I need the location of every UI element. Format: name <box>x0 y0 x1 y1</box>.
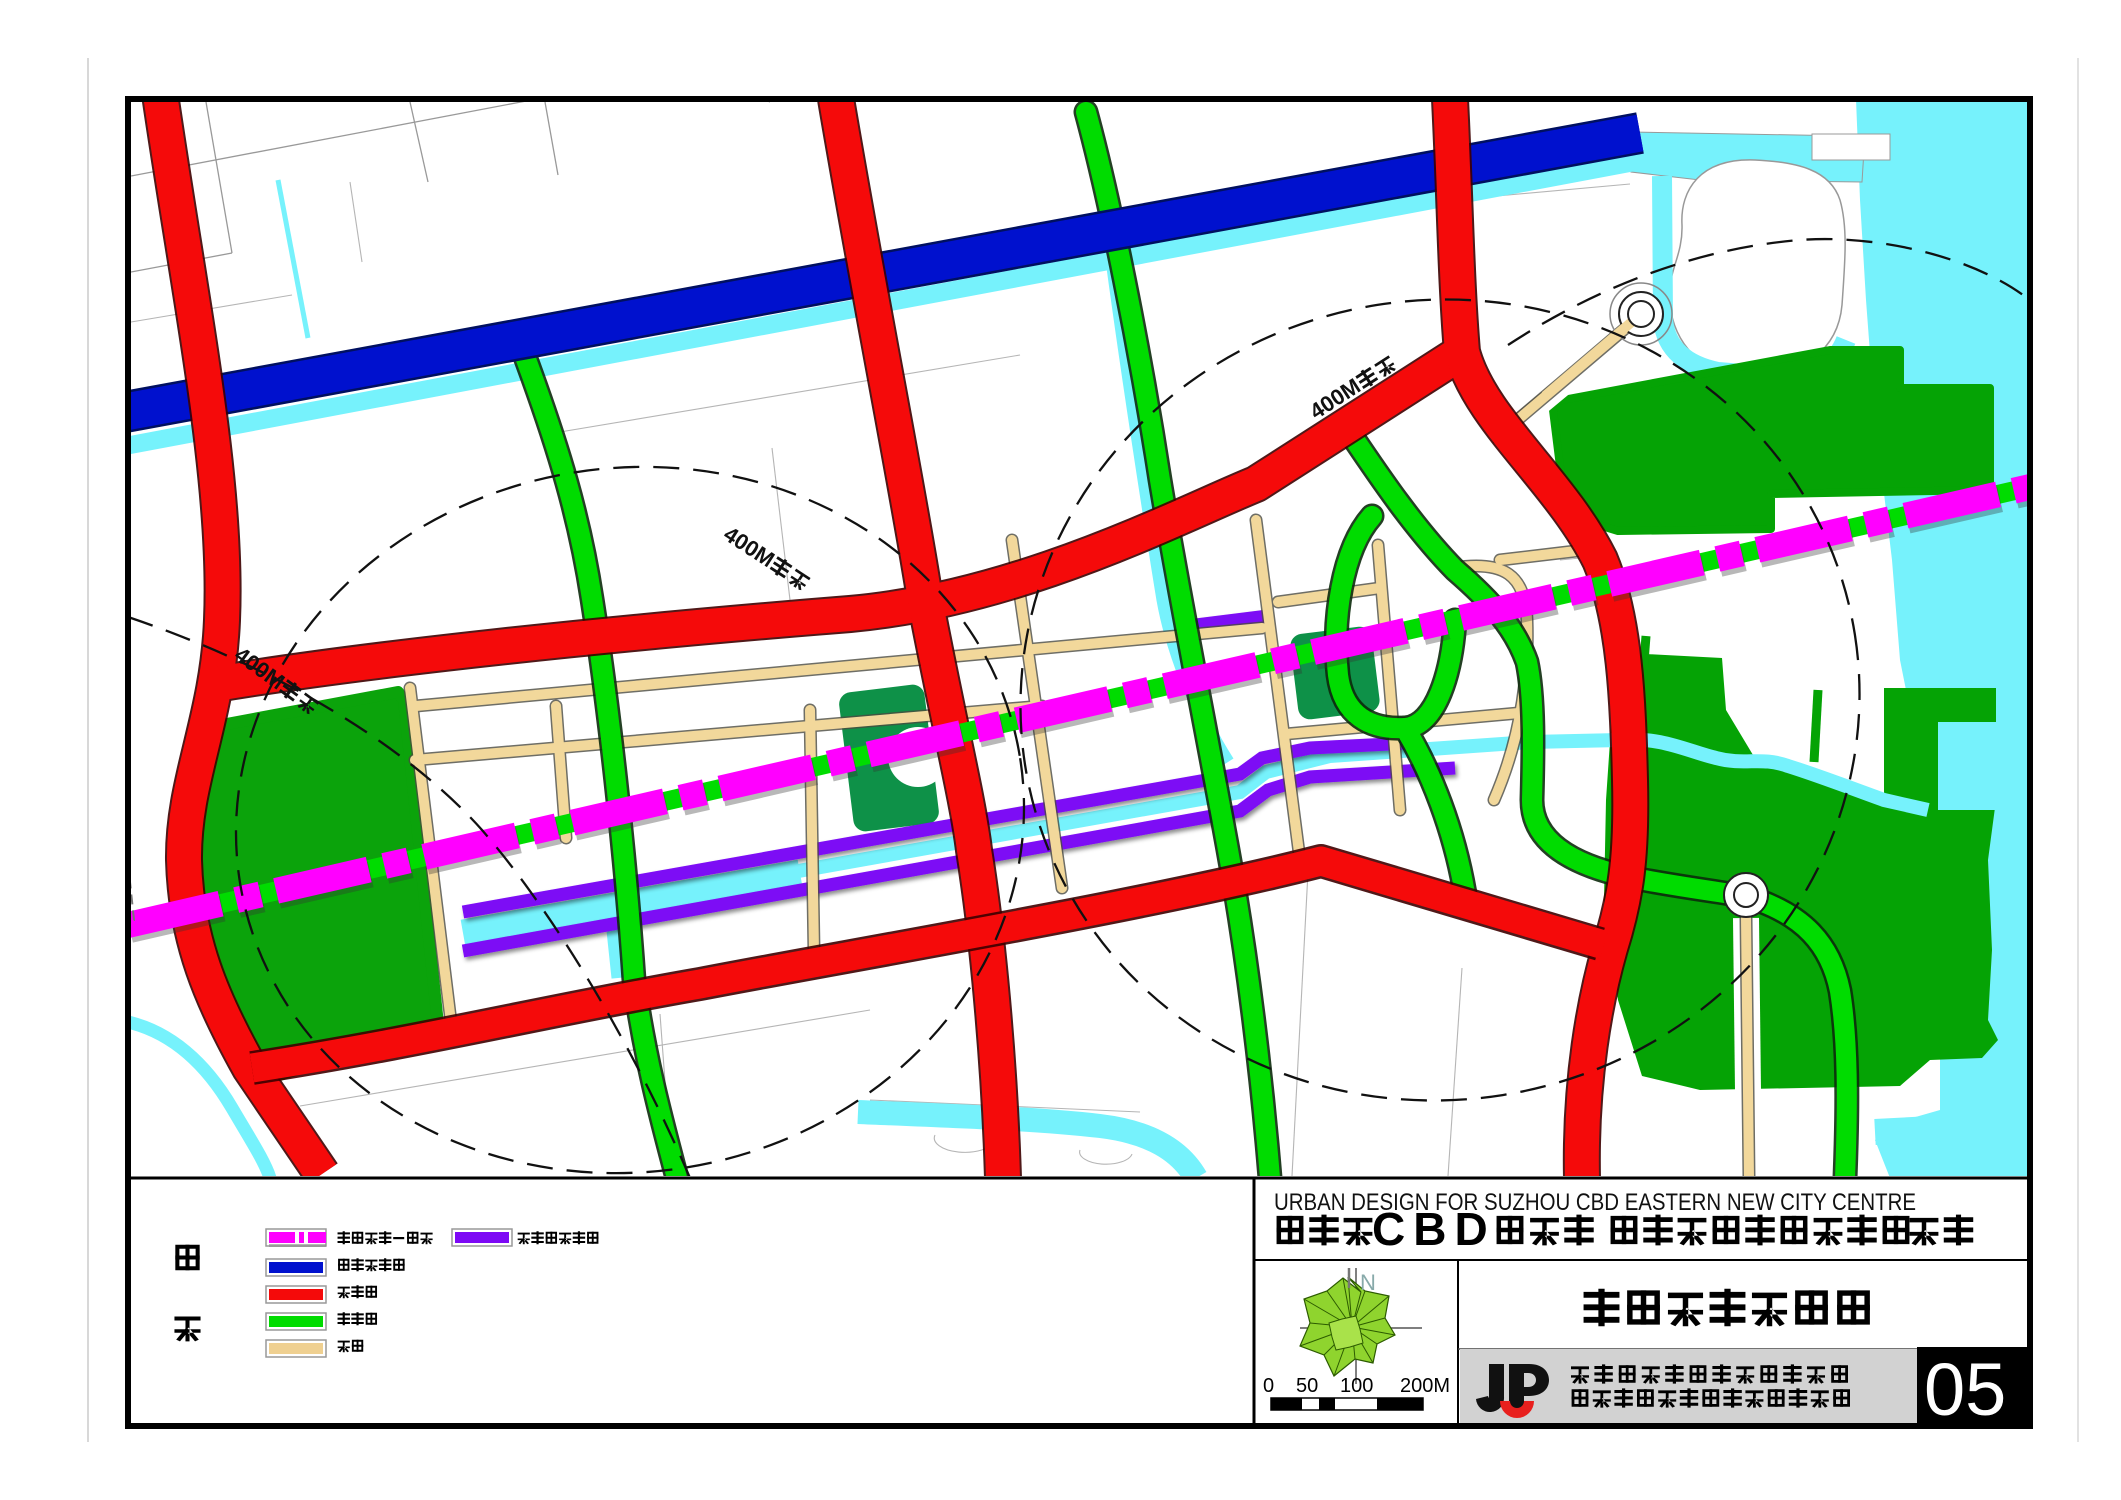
svg-text:50: 50 <box>1296 1375 1318 1397</box>
svg-text:URBAN DESIGN FOR SUZHOU CBD EA: URBAN DESIGN FOR SUZHOU CBD EASTERN NEW … <box>1274 1189 1916 1216</box>
svg-text:05: 05 <box>1924 1348 2006 1431</box>
svg-text:N: N <box>1360 1270 1376 1295</box>
svg-text:200M: 200M <box>1400 1375 1450 1397</box>
svg-text:100: 100 <box>1340 1375 1373 1397</box>
svg-text:CBD: CBD <box>1372 1203 1496 1255</box>
svg-text:0: 0 <box>1263 1375 1274 1397</box>
